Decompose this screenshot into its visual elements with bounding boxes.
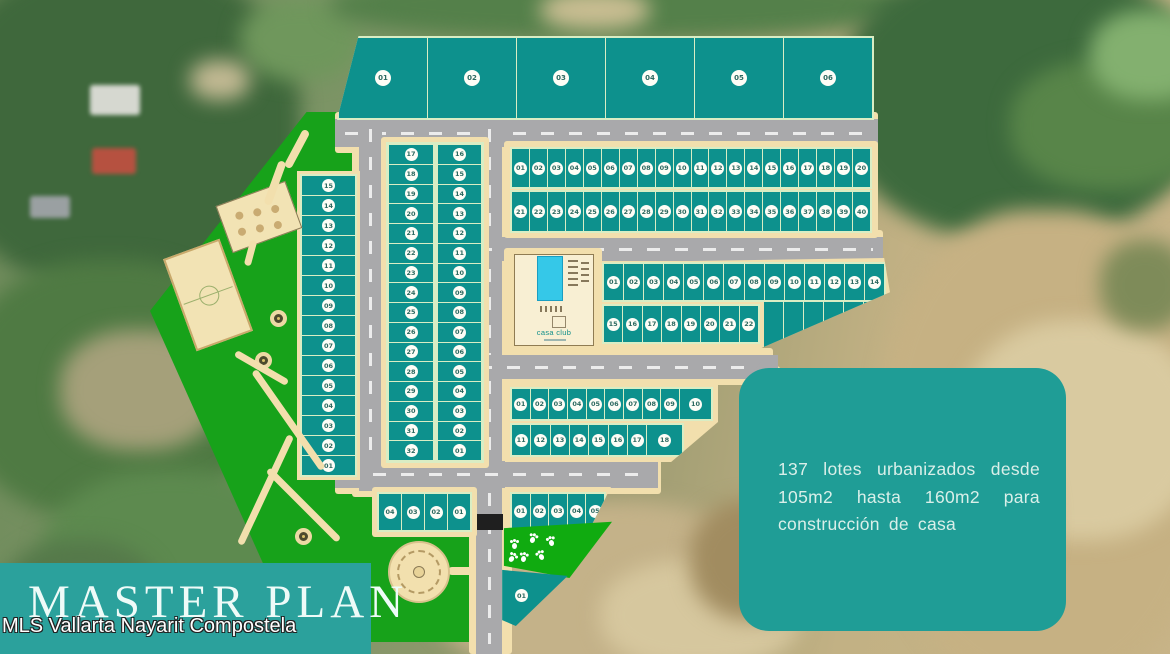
lot-number-badge: 09 xyxy=(768,276,781,289)
lot-number-badge: 25 xyxy=(586,205,599,218)
lot-number-badge: 04 xyxy=(642,70,658,86)
lot-35: 35 xyxy=(763,192,780,231)
lot-number-badge: 38 xyxy=(819,205,832,218)
lot-number-badge: 15 xyxy=(607,318,620,331)
lot-number-badge: 15 xyxy=(765,162,778,175)
lot-number-badge: 01 xyxy=(514,162,527,175)
lot-number-badge: 31 xyxy=(405,424,418,437)
lot-number-badge: 32 xyxy=(405,444,418,457)
lot-06: 06 xyxy=(784,38,872,118)
lot-number-badge: 07 xyxy=(322,339,335,352)
lot-number-badge: 20 xyxy=(855,162,868,175)
clearing-blob xyxy=(190,60,250,100)
crosswalk xyxy=(477,514,503,530)
lot-19: 19 xyxy=(682,306,700,342)
block-e-row1: 01020304050607080910 xyxy=(510,387,713,421)
lot-number-badge: 27 xyxy=(405,345,418,358)
lot-06: 06 xyxy=(605,389,623,419)
lot-08: 08 xyxy=(302,316,355,335)
watermark: MLS Vallarta Nayarit Compostela xyxy=(2,615,296,638)
lot-number-badge: 13 xyxy=(453,207,466,220)
lot-number-badge: 11 xyxy=(322,259,335,272)
lot-40: 40 xyxy=(853,192,870,231)
lot-number-badge: 25 xyxy=(405,306,418,319)
lot-number-badge: 14 xyxy=(453,187,466,200)
lot-number-badge: 16 xyxy=(453,148,466,161)
lot-05: 05 xyxy=(587,389,605,419)
lot-15: 15 xyxy=(302,176,355,195)
lot-number-badge: 17 xyxy=(801,162,814,175)
lot-26: 26 xyxy=(602,192,619,231)
lot-number-badge: 15 xyxy=(322,179,335,192)
lot-number-badge: 13 xyxy=(848,276,861,289)
lot-19: 19 xyxy=(389,185,433,204)
house-red-roof xyxy=(92,148,136,174)
lot-number-badge: 29 xyxy=(405,385,418,398)
lot-number-badge: 13 xyxy=(322,219,335,232)
lot-14: 14 xyxy=(865,264,884,300)
lot-02: 02 xyxy=(425,494,447,530)
lot-29: 29 xyxy=(656,192,673,231)
pool xyxy=(537,256,563,301)
lot-number-badge: 34 xyxy=(747,205,760,218)
lot-number-badge: 37 xyxy=(801,205,814,218)
lot-36: 36 xyxy=(781,192,798,231)
lot-number-badge: 30 xyxy=(676,205,689,218)
lot-number-badge: 11 xyxy=(694,162,707,175)
lot-31: 31 xyxy=(389,422,433,441)
lot-12: 12 xyxy=(438,224,481,243)
lot-number-badge: 05 xyxy=(322,379,335,392)
lot-number-badge: 05 xyxy=(589,398,602,411)
lot-03: 03 xyxy=(549,494,567,528)
info-card: 137lotesurbanizadosdesde105m2hasta160m2p… xyxy=(739,368,1066,631)
lot-04: 04 xyxy=(568,494,586,528)
lot-number-badge: 22 xyxy=(742,318,755,331)
lot-number-badge: 07 xyxy=(453,326,466,339)
lot-17: 17 xyxy=(643,306,661,342)
lot-number-badge: 12 xyxy=(322,239,335,252)
lot-04: 04 xyxy=(302,396,355,415)
lot-04: 04 xyxy=(606,38,694,118)
lot-number-badge: 03 xyxy=(322,419,335,432)
lot-number-badge: 02 xyxy=(464,70,480,86)
lot-32: 32 xyxy=(389,441,433,460)
lot-number-badge: 02 xyxy=(533,505,546,518)
lot-18: 18 xyxy=(817,149,834,187)
lot-number-badge: 31 xyxy=(694,205,707,218)
house-roof xyxy=(90,85,140,115)
lot-number-badge: 08 xyxy=(453,306,466,319)
lot-08: 08 xyxy=(438,303,481,322)
lot-number-badge: 28 xyxy=(405,365,418,378)
block-e-row2: 1112131415161718 xyxy=(510,423,684,457)
lot-15: 15 xyxy=(589,425,607,455)
block-b-col-right: 16151413121110090807060504030201 xyxy=(436,143,483,462)
block-c-column: 151413121110090807060504030201 xyxy=(300,174,357,477)
lot-30: 30 xyxy=(674,192,691,231)
lot-number-badge: 04 xyxy=(570,398,583,411)
lot-number-badge: 02 xyxy=(322,439,335,452)
lot-number-badge: 40 xyxy=(855,205,868,218)
lot-number-badge: 05 xyxy=(687,276,700,289)
lot-11: 11 xyxy=(805,264,824,300)
lot-number-badge: 02 xyxy=(430,506,443,519)
lot-number-badge: 14 xyxy=(322,199,335,212)
lot-14: 14 xyxy=(570,425,588,455)
lot-number-badge: 20 xyxy=(704,318,717,331)
lot-number-badge: 05 xyxy=(453,365,466,378)
scrub-patch xyxy=(1100,240,1170,330)
lot-12: 12 xyxy=(825,264,844,300)
lot-07: 07 xyxy=(624,389,642,419)
master-plan-canvas: 010203040506 010203040506070809101112131… xyxy=(0,0,1170,654)
lot-01: 01 xyxy=(438,441,481,460)
lot-08: 08 xyxy=(643,389,661,419)
lot-number-badge: 33 xyxy=(729,205,742,218)
lot-number-badge: 23 xyxy=(550,205,563,218)
lot-04: 04 xyxy=(664,264,683,300)
lot-27: 27 xyxy=(389,343,433,362)
lot-number-badge: 15 xyxy=(592,434,605,447)
lot-number-badge: 03 xyxy=(552,398,565,411)
lot-07: 07 xyxy=(724,264,743,300)
house-roof xyxy=(30,196,70,218)
lot-15: 15 xyxy=(763,149,780,187)
lot-number-badge: 01 xyxy=(514,398,527,411)
lot-03: 03 xyxy=(517,38,605,118)
lot-25: 25 xyxy=(389,303,433,322)
lot-number-badge: 15 xyxy=(453,168,466,181)
lot-17: 17 xyxy=(799,149,816,187)
lot-20: 20 xyxy=(701,306,719,342)
lot-number-badge: 09 xyxy=(453,286,466,299)
lot-number-badge: 04 xyxy=(384,506,397,519)
lot-number-badge: 03 xyxy=(550,162,563,175)
lot-02: 02 xyxy=(531,494,549,528)
lot-26: 26 xyxy=(389,323,433,342)
lot-number-badge: 12 xyxy=(711,162,724,175)
lot-number-badge: 05 xyxy=(731,70,747,86)
lot-number-badge: 10 xyxy=(676,162,689,175)
lot-14: 14 xyxy=(302,196,355,215)
lot-05: 05 xyxy=(302,376,355,395)
lot-number-badge: 17 xyxy=(405,148,418,161)
lot-03: 03 xyxy=(402,494,424,530)
lot-number-badge: 03 xyxy=(551,505,564,518)
lot-number-badge: 04 xyxy=(322,399,335,412)
lot-11: 11 xyxy=(512,425,530,455)
info-card-line: 137lotesurbanizadosdesde xyxy=(778,456,1040,484)
lot-16: 16 xyxy=(609,425,627,455)
lot-21: 21 xyxy=(720,306,738,342)
lot-28: 28 xyxy=(389,362,433,381)
lot-31: 31 xyxy=(692,192,709,231)
lot-07: 07 xyxy=(620,149,637,187)
lot-number-badge: 22 xyxy=(532,205,545,218)
tree-icon xyxy=(270,310,287,327)
lot-number-badge: 16 xyxy=(626,318,639,331)
lot-12: 12 xyxy=(302,236,355,255)
top-lot-row: 010203040506 xyxy=(337,36,874,120)
lot-02: 02 xyxy=(624,264,643,300)
lot-number-badge: 24 xyxy=(568,205,581,218)
lot-number-badge: 06 xyxy=(453,345,466,358)
lot-18: 18 xyxy=(662,306,680,342)
plaza-access-path xyxy=(448,567,476,575)
lot-10: 10 xyxy=(438,264,481,283)
lot-34: 34 xyxy=(745,192,762,231)
lot-05: 05 xyxy=(695,38,783,118)
lot-number-badge: 06 xyxy=(604,162,617,175)
lot-number-badge: 29 xyxy=(658,205,671,218)
lot-09: 09 xyxy=(661,389,679,419)
lot-number-badge: 14 xyxy=(868,276,881,289)
lot-number-badge: 01 xyxy=(453,506,466,519)
lot-12: 12 xyxy=(709,149,726,187)
lot-number-badge: 30 xyxy=(405,405,418,418)
lot-number-badge: 10 xyxy=(453,266,466,279)
lot-number-badge: 07 xyxy=(728,276,741,289)
lot-number-badge: 21 xyxy=(723,318,736,331)
lot-number-badge: 11 xyxy=(515,434,528,447)
lot-number-badge: 22 xyxy=(405,247,418,260)
lot-10: 10 xyxy=(674,149,691,187)
lot-number-badge: 09 xyxy=(658,162,671,175)
lot-01: 01 xyxy=(604,264,623,300)
furniture-marks xyxy=(540,306,562,312)
lot-number-badge: 21 xyxy=(514,205,527,218)
lot-08: 08 xyxy=(638,149,655,187)
lot-number-badge: 16 xyxy=(783,162,796,175)
lot-01: 01 xyxy=(512,494,530,528)
lot-16: 16 xyxy=(623,306,641,342)
lot-25: 25 xyxy=(584,192,601,231)
lot-number-badge: 27 xyxy=(622,205,635,218)
lot-02: 02 xyxy=(428,38,516,118)
furniture-marks xyxy=(581,262,589,284)
lot-32: 32 xyxy=(709,192,726,231)
info-card-text: 137lotesurbanizadosdesde105m2hasta160m2p… xyxy=(778,456,1040,539)
lot-number-badge: 04 xyxy=(453,385,466,398)
lot-number-badge: 17 xyxy=(631,434,644,447)
lot-04: 04 xyxy=(438,382,481,401)
lot-number-badge: 06 xyxy=(322,359,335,372)
lot-number-badge: 03 xyxy=(553,70,569,86)
lot-number-badge: 11 xyxy=(808,276,821,289)
block-f-row: 04030201 xyxy=(377,492,472,532)
lot-10: 10 xyxy=(680,389,711,419)
lot-22: 22 xyxy=(389,244,433,263)
lot-03: 03 xyxy=(302,416,355,435)
lot-13: 13 xyxy=(302,216,355,235)
lot-number-badge: 09 xyxy=(664,398,677,411)
lot-04: 04 xyxy=(568,389,586,419)
lot-number-badge: 10 xyxy=(788,276,801,289)
lot-number-badge: 01 xyxy=(514,505,527,518)
lot-number-badge: 08 xyxy=(748,276,761,289)
lot-13: 13 xyxy=(551,425,569,455)
lot-number-badge: 13 xyxy=(553,434,566,447)
lot-number-badge: 04 xyxy=(568,162,581,175)
paw-print-icon xyxy=(512,543,517,549)
lot-01: 01 xyxy=(512,149,529,187)
lot-03: 03 xyxy=(438,402,481,421)
lot-02: 02 xyxy=(530,149,547,187)
lot-number-badge: 23 xyxy=(405,266,418,279)
lot-23: 23 xyxy=(548,192,565,231)
lot-number-badge: 12 xyxy=(534,434,547,447)
lot-05: 05 xyxy=(684,264,703,300)
lot-number-badge: 09 xyxy=(322,299,335,312)
lot-number-badge: 01 xyxy=(607,276,620,289)
lot-number-badge: 01 xyxy=(453,444,466,457)
lot-23: 23 xyxy=(389,264,433,283)
lot-09: 09 xyxy=(302,296,355,315)
road-left xyxy=(359,119,382,491)
lot-number-badge: 18 xyxy=(665,318,678,331)
lot-37: 37 xyxy=(799,192,816,231)
info-card-line: 105m2hasta160m2para xyxy=(778,484,1040,512)
lot-24: 24 xyxy=(566,192,583,231)
lot-05: 05 xyxy=(584,149,601,187)
lot-number-badge: 24 xyxy=(405,286,418,299)
lot-29: 29 xyxy=(389,382,433,401)
lot-04: 04 xyxy=(379,494,401,530)
lot-number-badge: 01 xyxy=(375,70,391,86)
lot-11: 11 xyxy=(438,244,481,263)
lot-10: 10 xyxy=(302,276,355,295)
block-d-row2: 1516171819202122 xyxy=(602,304,760,344)
lot-number-badge: 21 xyxy=(405,227,418,240)
block-b-col-left: 17181920212223242526272829303132 xyxy=(387,143,435,462)
lot-22: 22 xyxy=(740,306,758,342)
lot-11: 11 xyxy=(302,256,355,275)
lot-30: 30 xyxy=(389,402,433,421)
lot-06: 06 xyxy=(602,149,619,187)
lot-07: 07 xyxy=(438,323,481,342)
lot-16: 16 xyxy=(438,145,481,164)
lot-number-badge: 06 xyxy=(707,276,720,289)
lot-number-badge: 16 xyxy=(611,434,624,447)
lot-01: 01 xyxy=(302,456,355,475)
lot-number-badge: 26 xyxy=(405,326,418,339)
lot-17: 17 xyxy=(389,145,433,164)
lot-06: 06 xyxy=(302,356,355,375)
lot-number-badge: 05 xyxy=(586,162,599,175)
block-d-row1: 0102030405060708091011121314 xyxy=(602,262,886,302)
lot-number-badge: 13 xyxy=(729,162,742,175)
lot-27: 27 xyxy=(620,192,637,231)
lot-number-badge: 06 xyxy=(608,398,621,411)
lot-02: 02 xyxy=(531,389,549,419)
lot-13: 13 xyxy=(845,264,864,300)
lot-number-badge: 02 xyxy=(532,162,545,175)
lot-number-badge: 18 xyxy=(405,168,418,181)
lot-number-badge: 02 xyxy=(453,424,466,437)
lot-number-badge: 26 xyxy=(604,205,617,218)
lot-18: 18 xyxy=(389,165,433,184)
lot-number-badge: 06 xyxy=(820,70,836,86)
lot-number-badge: 14 xyxy=(573,434,586,447)
road-third xyxy=(469,355,778,379)
lot-09: 09 xyxy=(438,283,481,302)
lot-21: 21 xyxy=(389,224,433,243)
lot-38: 38 xyxy=(817,192,834,231)
lot-number-badge: 02 xyxy=(533,398,546,411)
lot-18: 18 xyxy=(647,425,682,455)
lot-21: 21 xyxy=(512,192,529,231)
block-a-row2: 2122232425262728293031323334353637383940 xyxy=(510,190,872,233)
lot-number-badge: 32 xyxy=(711,205,724,218)
lot-number-badge: 10 xyxy=(322,279,335,292)
lot-number-badge: 10 xyxy=(689,398,702,411)
lot-number-badge: 08 xyxy=(640,162,653,175)
tree-icon xyxy=(295,528,312,545)
lot-13: 13 xyxy=(727,149,744,187)
lot-14: 14 xyxy=(745,149,762,187)
lot-number-badge: 03 xyxy=(647,276,660,289)
lot-number-badge: 35 xyxy=(765,205,778,218)
lot-number-badge: 03 xyxy=(453,405,466,418)
block-a-row1: 0102030405060708091011121314151617181920 xyxy=(510,147,872,189)
lot-02: 02 xyxy=(438,422,481,441)
lot-28: 28 xyxy=(638,192,655,231)
lot-16: 16 xyxy=(781,149,798,187)
lot-number-badge: 12 xyxy=(828,276,841,289)
lot-33: 33 xyxy=(727,192,744,231)
lot-number-badge: 19 xyxy=(684,318,697,331)
lot-17: 17 xyxy=(628,425,646,455)
lot-number-badge: 19 xyxy=(405,187,418,200)
lot-15: 15 xyxy=(604,306,622,342)
lot-number-badge: 07 xyxy=(622,162,635,175)
lot-number-badge: 11 xyxy=(453,247,466,260)
lot-number-badge: 18 xyxy=(819,162,832,175)
lot-number-badge: 07 xyxy=(626,398,639,411)
lot-12: 12 xyxy=(531,425,549,455)
casa-club-label: casa club xyxy=(524,328,584,337)
lot-number-badge: 04 xyxy=(667,276,680,289)
lot-number-badge: 19 xyxy=(837,162,850,175)
lot-04: 04 xyxy=(566,149,583,187)
lot-number-badge: 03 xyxy=(407,506,420,519)
lot-19: 19 xyxy=(835,149,852,187)
lot-number-badge: 08 xyxy=(322,319,335,332)
lot-number-badge: 14 xyxy=(747,162,760,175)
lot-39: 39 xyxy=(835,192,852,231)
lot-07: 07 xyxy=(302,336,355,355)
lot-13: 13 xyxy=(438,204,481,223)
lot-number-badge: 02 xyxy=(627,276,640,289)
lot-number-badge: 01 xyxy=(515,589,528,602)
lot-01: 01 xyxy=(448,494,470,530)
lot-number-badge: 04 xyxy=(570,505,583,518)
lot-number-badge: 28 xyxy=(640,205,653,218)
lot-number-badge: 17 xyxy=(645,318,658,331)
lot-06: 06 xyxy=(438,343,481,362)
lot-03: 03 xyxy=(549,389,567,419)
lot-number-badge: 12 xyxy=(453,227,466,240)
lot-03: 03 xyxy=(548,149,565,187)
lot-10: 10 xyxy=(785,264,804,300)
lot-09: 09 xyxy=(765,264,784,300)
furniture-marks xyxy=(552,316,566,328)
lot-09: 09 xyxy=(656,149,673,187)
lot-08: 08 xyxy=(745,264,764,300)
lot-01: 01 xyxy=(512,389,530,419)
lot-number-badge: 39 xyxy=(837,205,850,218)
